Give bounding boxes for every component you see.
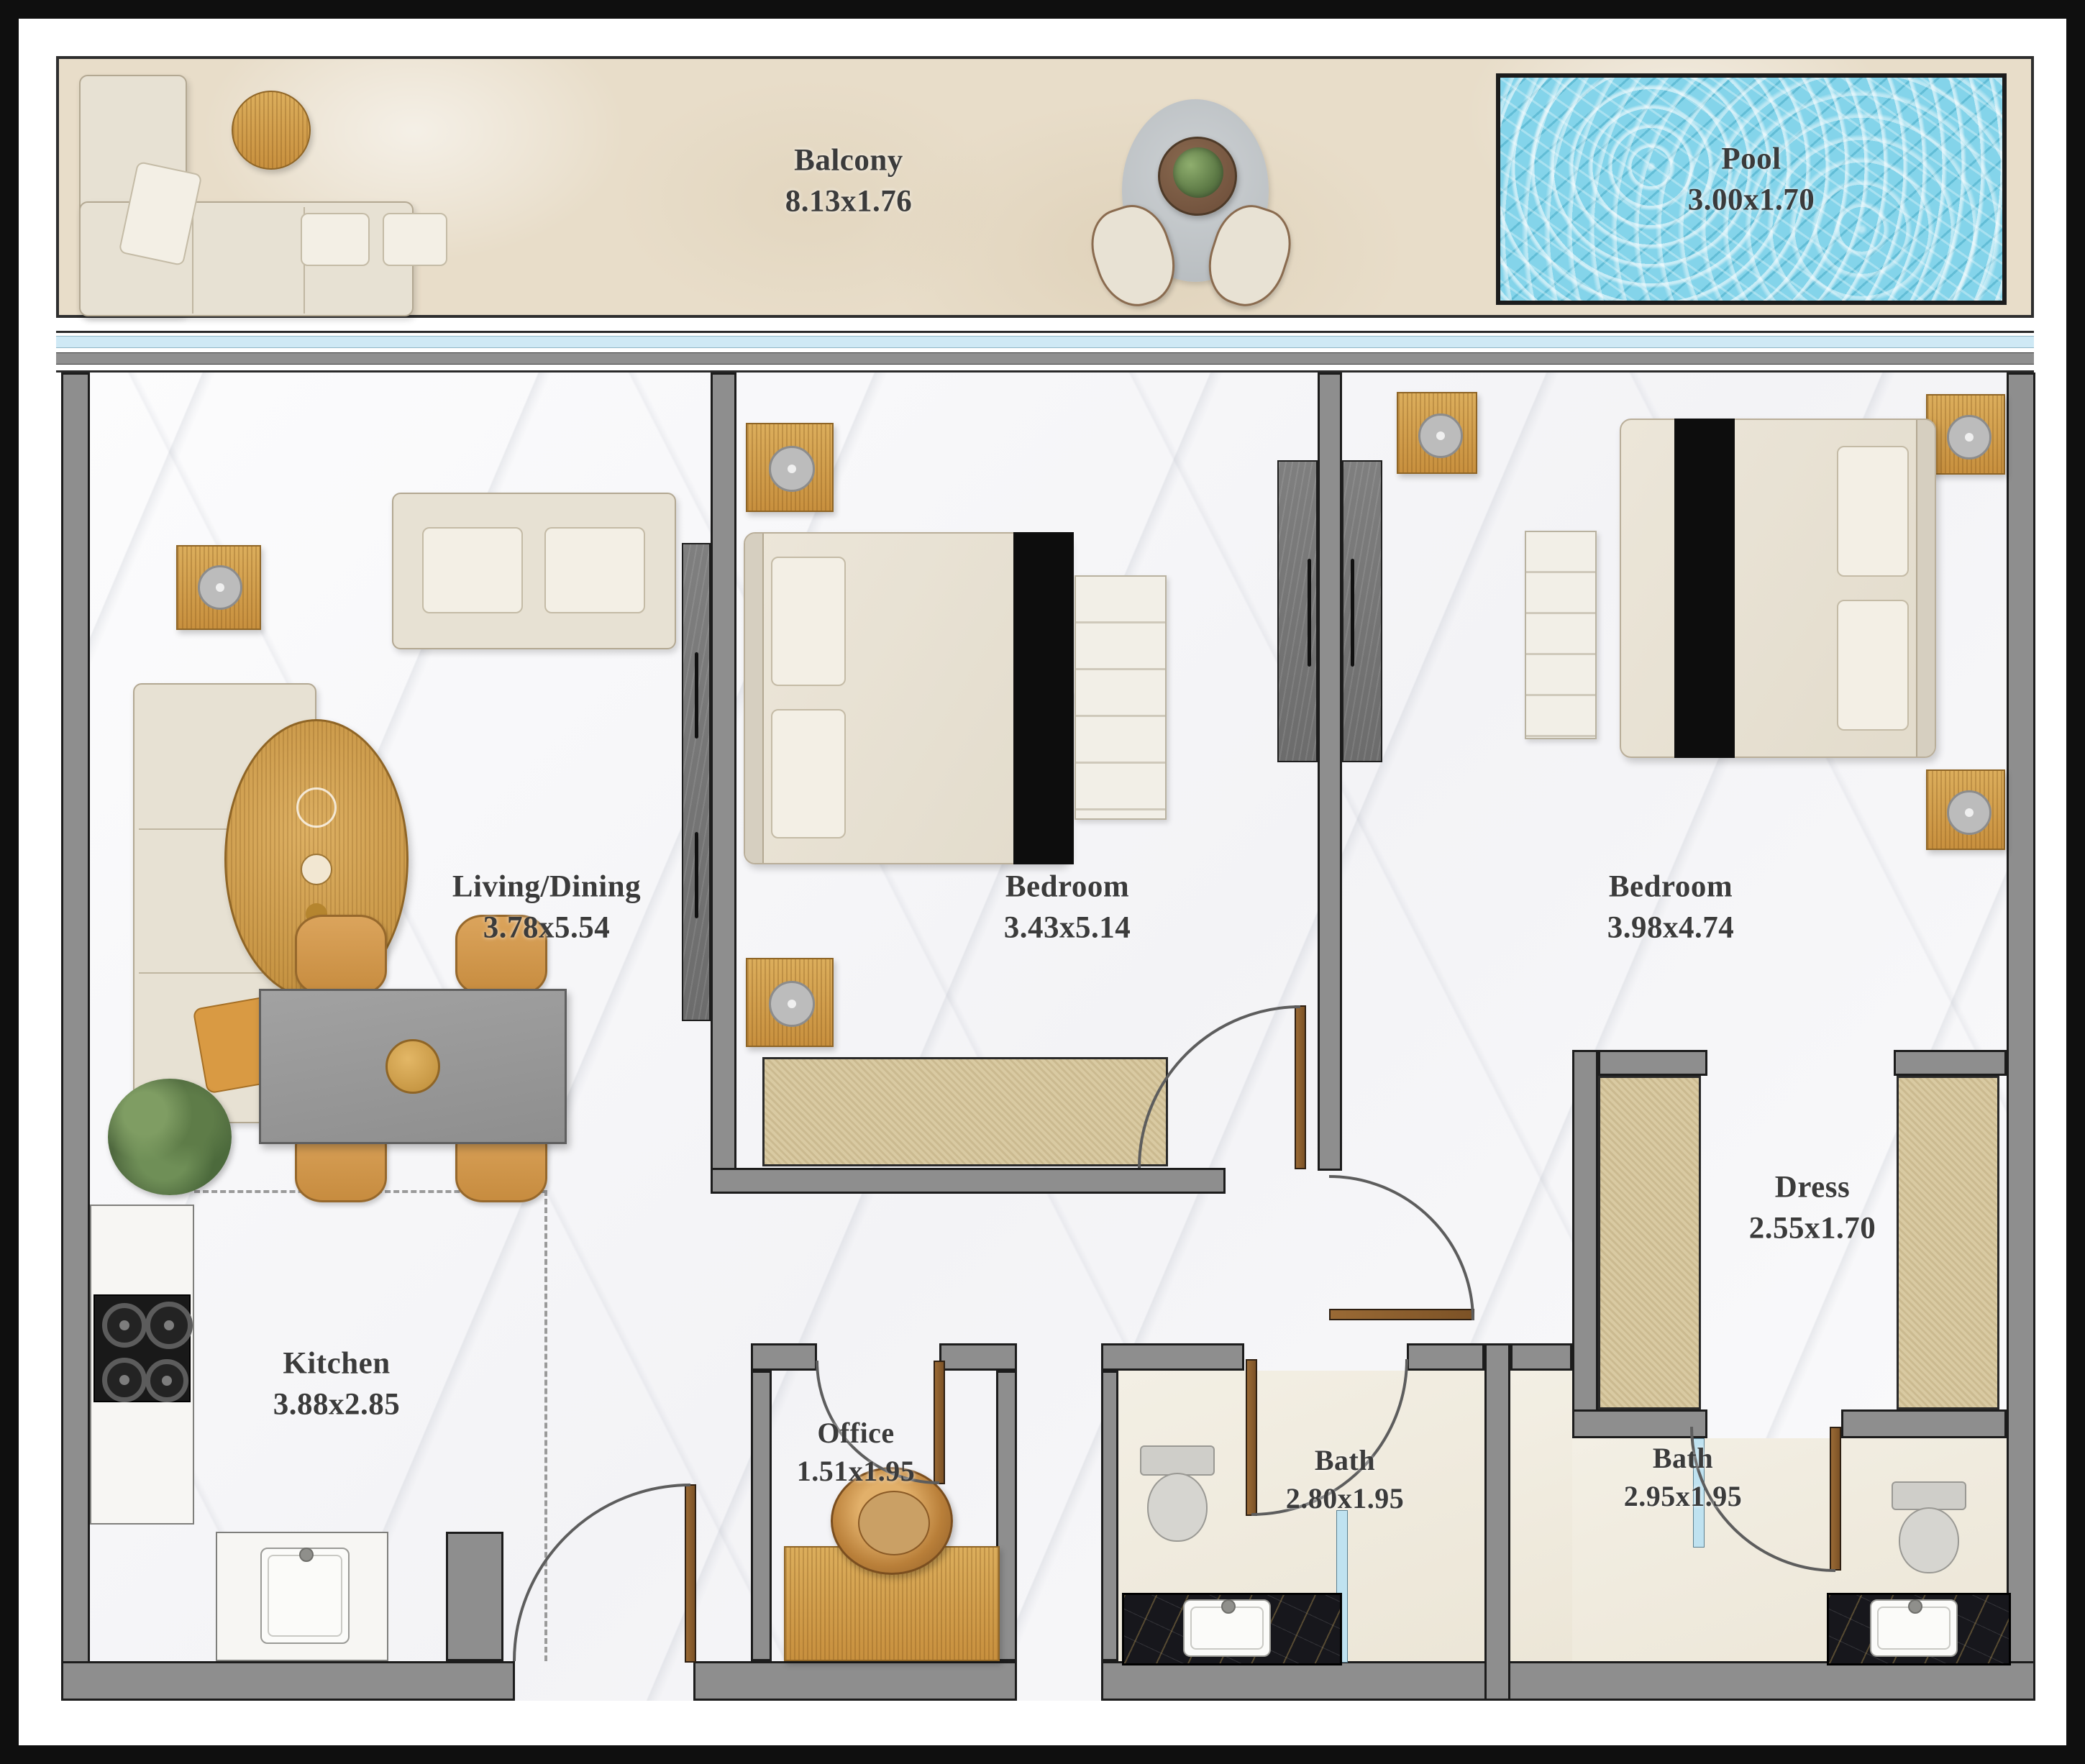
label-dress: Dress 2.55x1.70 [1749,1167,1876,1249]
wardrobe-handle [1351,559,1354,667]
wall-exterior-bottom [693,1661,1017,1701]
bath2-sink-icon [1870,1599,1958,1657]
bath1-toilet-tank-icon [1140,1445,1215,1476]
room-dims: 3.98x4.74 [1607,908,1735,949]
wall-exterior-right [2007,373,2035,1701]
bedroom2-wardrobe-icon [1342,460,1382,762]
burner-icon [102,1358,147,1402]
window-glass-line [56,336,2034,348]
balcony-round-table-icon [232,91,311,170]
label-balcony: Balcony 8.13x1.76 [785,140,913,222]
label-kitchen: Kitchen 3.88x2.85 [273,1343,401,1425]
wall-bath1-top [1407,1343,1484,1371]
bed-headboard [745,534,764,863]
wall-bedroom1-bedroom2 [1318,373,1342,1171]
room-dims: 2.95x1.95 [1624,1478,1743,1516]
label-bath1: Bath 2.80x1.95 [1286,1442,1405,1518]
bed-headboard [1916,420,1935,757]
entry-door-leaf [685,1484,696,1663]
room-dims: 2.55x1.70 [1749,1208,1876,1249]
bedroom2-bed-icon [1620,419,1936,758]
wall-dress-top [1894,1050,2007,1076]
bedroom2-nightstand-icon [1926,769,2005,850]
console-handle [695,652,698,739]
wall-dress-left [1572,1050,1598,1438]
nightstand-lamp-icon [1947,790,1992,835]
bedroom1-nightstand-icon [746,958,834,1047]
burner-icon [145,1302,193,1349]
nightstand-lamp-icon [769,981,815,1027]
office-chair-seat [858,1491,930,1555]
room-name: Office [797,1415,916,1453]
bedroom1-wardrobe-icon [1277,460,1318,762]
living-side-table-icon [176,545,261,630]
loveseat-icon [392,493,676,649]
burner-icon [102,1303,147,1348]
burner-icon [145,1359,188,1402]
bistro-plant-icon [1173,147,1223,198]
wall-office-top [751,1343,817,1371]
wall-kitchen-stub [446,1532,503,1661]
stove-icon [93,1294,191,1402]
table-ring-icon [296,787,337,828]
bath2-door-leaf [1830,1427,1841,1571]
nightstand-lamp-icon [769,446,815,492]
bedroom1-bed-icon [744,532,1069,864]
room-name: Bedroom [1004,867,1131,908]
bed-pillow-icon [771,709,846,838]
office-door-leaf [934,1361,945,1484]
room-dims: 2.80x1.95 [1286,1480,1405,1518]
room-name: Bedroom [1607,867,1735,908]
room-name: Living/Dining [452,867,641,908]
sofa-cushion-divider [192,207,193,314]
bed-pillow-icon [771,557,846,686]
bedroom2-door-leaf [1329,1309,1474,1320]
label-bath2: Bath 2.95x1.95 [1624,1440,1743,1516]
sofa-pillow-icon [383,213,447,266]
bath1-door-leaf [1246,1359,1257,1516]
bed-runner [1013,532,1074,864]
wall-exterior-bottom [61,1661,515,1701]
window-sill-line [56,352,2034,365]
bed-pillow-icon [1837,600,1909,731]
kitchen-sink-icon [260,1548,350,1644]
table-lamp-icon [198,565,242,610]
bedroom1-door-leaf [1295,1005,1306,1169]
label-living-dining: Living/Dining 3.78x5.54 [452,867,641,949]
wall-bedroom1-bottom [711,1168,1226,1194]
bath2-floor [1510,1371,1572,1661]
room-name: Dress [1749,1167,1876,1208]
room-dims: 8.13x1.76 [785,181,913,222]
kitchen-sink-counter [216,1532,388,1661]
sofa-pillow-icon [544,527,645,613]
label-bedroom1: Bedroom 3.43x5.14 [1004,867,1131,949]
wall-bath1-bath2 [1484,1343,1510,1701]
dress-closet-left-icon [1598,1076,1701,1409]
bedroom2-bench-icon [1525,531,1597,739]
room-name: Bath [1624,1440,1743,1478]
bed-pillow-icon [1837,446,1909,577]
sofa-pillow-icon [422,527,523,613]
room-name: Pool [1688,139,1815,180]
wall-office-left [751,1371,772,1661]
wall-dress-top [1598,1050,1707,1076]
bedroom1-bench-icon [1075,575,1167,820]
bed-runner [1674,419,1735,758]
dining-centerpiece-icon [385,1039,440,1094]
bedroom1-dresser-icon [762,1057,1168,1166]
table-lamp-icon [1418,413,1463,458]
dining-table-icon [259,989,567,1144]
table-decor-icon [301,854,332,885]
room-dims: 3.88x2.85 [273,1384,401,1425]
dress-closet-right-icon [1897,1076,1999,1409]
sofa-pillow-icon [301,213,370,266]
label-pool: Pool 3.00x1.70 [1688,139,1815,221]
room-dims: 1.51x1.95 [797,1453,916,1491]
label-office: Office 1.51x1.95 [797,1415,916,1491]
kitchen-dashed-line [544,1190,547,1661]
wall-office-top [939,1343,1017,1371]
bath1-toilet-icon [1147,1473,1208,1542]
bedroom2-nightstand-icon [1926,394,2005,475]
wall-bath1-top [1101,1343,1244,1371]
room-dims: 3.00x1.70 [1688,180,1815,221]
room-dims: 3.43x5.14 [1004,908,1131,949]
window-band [56,331,2034,373]
nightstand-lamp-icon [1947,415,1992,460]
wall-bath1-left [1101,1371,1118,1661]
wall-living-bedroom1 [711,373,736,1194]
wall-dress-bottom [1841,1409,2007,1438]
room-name: Kitchen [273,1343,401,1384]
label-bedroom2: Bedroom 3.98x4.74 [1607,867,1735,949]
bath2-toilet-icon [1899,1507,1959,1573]
wall-exterior-left [61,373,90,1701]
bedroom1-nightstand-icon [746,423,834,512]
console-handle [695,832,698,918]
bedroom2-side-table-icon [1397,392,1477,474]
floor-plan: Balcony 8.13x1.76 Pool 3.00x1.70 Living/… [0,0,2085,1764]
wall-bath2-top [1510,1343,1572,1371]
bath1-sink-icon [1183,1599,1271,1657]
room-name: Bath [1286,1442,1405,1480]
room-dims: 3.78x5.54 [452,908,641,949]
wardrobe-handle [1308,559,1311,667]
wall-dress-bottom [1572,1409,1707,1438]
room-name: Balcony [785,140,913,181]
wall-exterior-bottom [1101,1661,2035,1701]
dining-chair-icon [295,915,387,995]
window-frame-line [56,331,2034,333]
plant-icon [108,1079,232,1195]
living-console-icon [682,543,711,1021]
bath2-toilet-tank-icon [1892,1481,1966,1510]
bistro-table-icon [1158,137,1237,216]
